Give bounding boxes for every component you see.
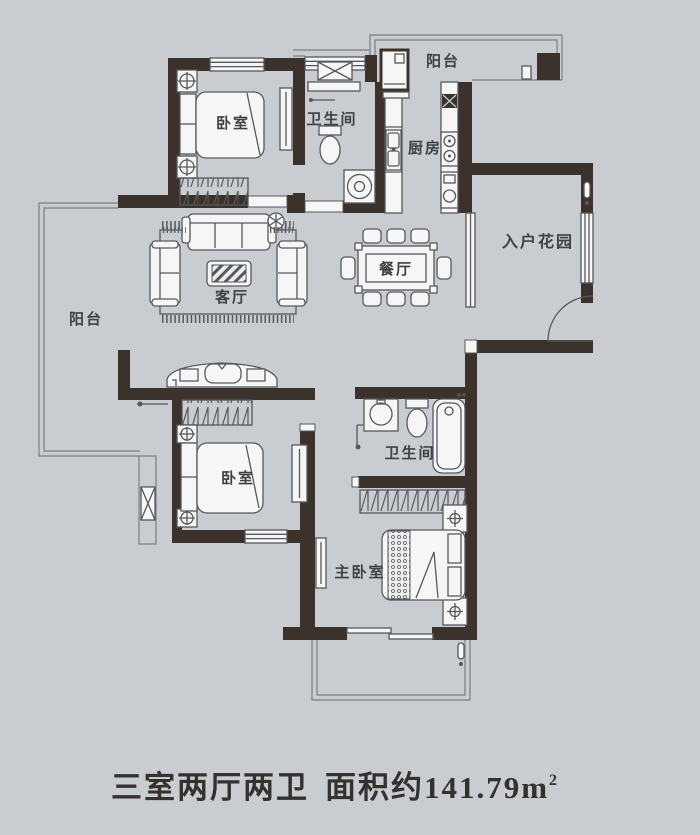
- window-bedroom-mid: [245, 530, 287, 543]
- water-heater: [381, 50, 408, 90]
- nightstand: [177, 425, 197, 443]
- bed-pillows: [448, 534, 461, 563]
- room-label-kitchen: 厨房: [408, 139, 442, 157]
- coffee-table: [207, 261, 251, 286]
- room-label-balcony-top: 阳台: [426, 52, 460, 70]
- washing-machine: [344, 170, 375, 203]
- armchair-left: [150, 241, 180, 306]
- room-label-entry-garden: 入户花园: [502, 232, 574, 251]
- title-area-prefix: 面积约: [325, 770, 424, 805]
- room-label-master-bedroom: 主卧室: [334, 563, 385, 581]
- room-label-bathroom-bottom: 卫生间: [384, 444, 435, 462]
- floor-plan-page: 阳台 卫生间 厨房 卧室 入户花园 餐厅 客厅 阳台 卧室 卫生间 主卧室 三室…: [0, 0, 700, 835]
- room-label-bathroom-top: 卫生间: [306, 110, 357, 128]
- title-area-value: 141.79m: [424, 770, 549, 805]
- small-box: [522, 66, 531, 79]
- armchair-right: [277, 241, 307, 306]
- room-label-bedroom-mid: 卧室: [221, 469, 255, 487]
- nightstand: [177, 156, 197, 178]
- bathroom-top-door-gap: [305, 201, 343, 212]
- stove: [441, 132, 458, 166]
- small-appliance: [441, 172, 458, 208]
- title-area-superscript: 2: [549, 772, 559, 789]
- bed-pillows: [448, 567, 461, 596]
- bedroom-top-door-gap: [248, 196, 287, 207]
- sink: [386, 130, 401, 170]
- wardrobe: [182, 400, 252, 425]
- wardrobe: [180, 178, 248, 205]
- floor-plan-canvas: 阳台 卫生间 厨房 卧室 入户花园 餐厅 客厅 阳台 卧室 卫生间 主卧室 三室…: [0, 0, 700, 835]
- window-entry-garden: [581, 213, 593, 283]
- glass-partition-dining: [466, 213, 475, 307]
- shelf: [383, 92, 409, 98]
- bathtub: [433, 393, 466, 473]
- nightstand: [443, 598, 467, 625]
- master-door-leaf: [316, 538, 326, 588]
- plant-icon: [268, 213, 284, 229]
- room-label-bedroom-top: 卧室: [216, 114, 250, 132]
- room-label-dining: 餐厅: [379, 260, 413, 278]
- window-bedroom-top: [210, 58, 264, 71]
- nightstand: [177, 509, 197, 527]
- nightstand: [443, 505, 467, 532]
- plan-title: 三室两厅两卫面积约141.79m2: [111, 770, 559, 805]
- room-label-living: 客厅: [214, 288, 249, 306]
- nightstand: [177, 70, 197, 92]
- title-layout: 三室两厅两卫: [111, 770, 309, 805]
- toilet: [406, 399, 428, 437]
- sofa-main: [182, 214, 276, 250]
- bed-quilt: [388, 531, 410, 599]
- room-label-balcony-left: 阳台: [69, 310, 103, 328]
- washbasin: [364, 399, 398, 431]
- shelf: [308, 82, 360, 91]
- toilet: [319, 126, 341, 164]
